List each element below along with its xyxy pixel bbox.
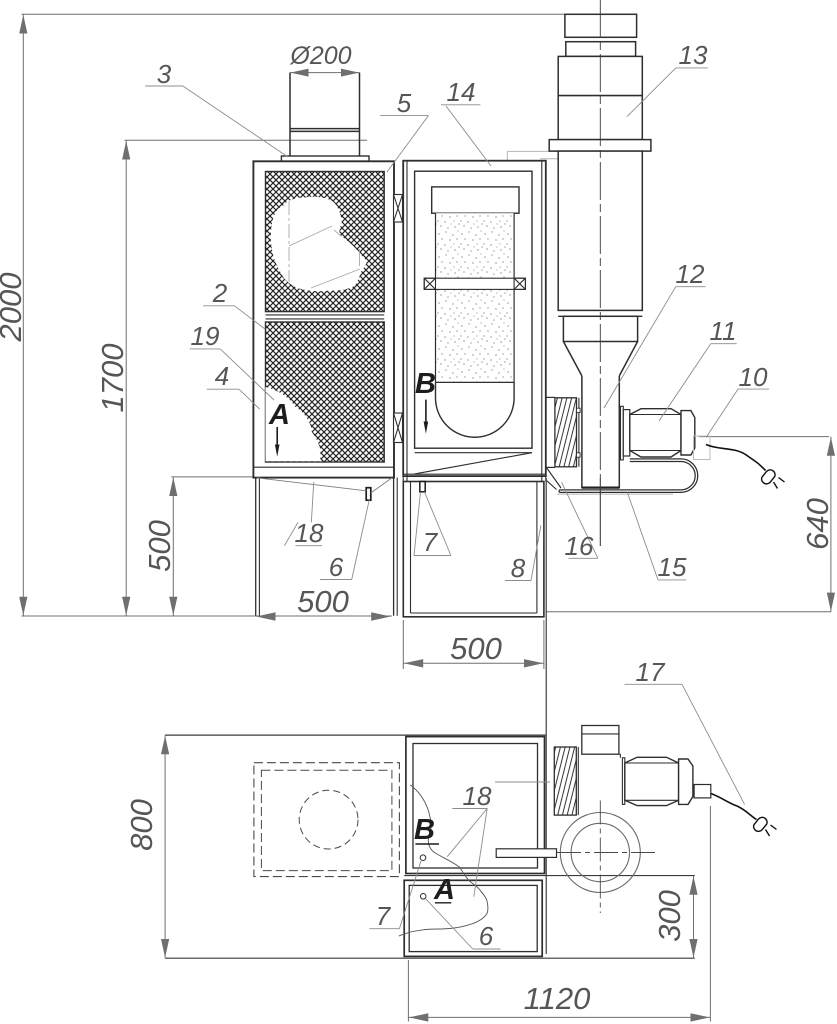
- svg-text:500: 500: [450, 631, 502, 666]
- svg-text:300: 300: [652, 890, 687, 942]
- svg-text:800: 800: [124, 799, 159, 851]
- svg-text:10: 10: [739, 362, 768, 392]
- svg-text:6: 6: [479, 921, 494, 951]
- svg-text:12: 12: [676, 259, 705, 289]
- svg-text:11: 11: [710, 316, 737, 346]
- svg-text:4: 4: [215, 361, 229, 391]
- svg-text:3: 3: [157, 59, 172, 89]
- svg-text:Ø200: Ø200: [289, 42, 351, 70]
- svg-text:15: 15: [658, 552, 687, 582]
- svg-text:2: 2: [212, 278, 228, 308]
- svg-text:5: 5: [397, 88, 412, 118]
- svg-text:7: 7: [423, 527, 439, 557]
- svg-text:A: A: [268, 399, 290, 431]
- svg-text:18: 18: [463, 781, 492, 811]
- svg-text:18: 18: [295, 518, 324, 548]
- svg-text:500: 500: [142, 520, 177, 572]
- svg-text:500: 500: [297, 584, 349, 619]
- svg-text:13: 13: [679, 40, 708, 70]
- svg-text:1700: 1700: [95, 344, 130, 413]
- svg-text:14: 14: [447, 77, 476, 107]
- svg-text:B: B: [415, 368, 436, 400]
- svg-text:7: 7: [376, 901, 392, 931]
- svg-text:A: A: [433, 874, 455, 906]
- svg-text:16: 16: [565, 531, 594, 561]
- svg-text:640: 640: [800, 498, 835, 550]
- svg-text:19: 19: [191, 321, 220, 351]
- svg-text:17: 17: [636, 657, 666, 687]
- svg-text:1120: 1120: [524, 981, 591, 1016]
- svg-text:8: 8: [511, 553, 526, 583]
- svg-text:2000: 2000: [0, 273, 28, 343]
- svg-text:6: 6: [329, 552, 344, 582]
- svg-text:B: B: [414, 814, 435, 846]
